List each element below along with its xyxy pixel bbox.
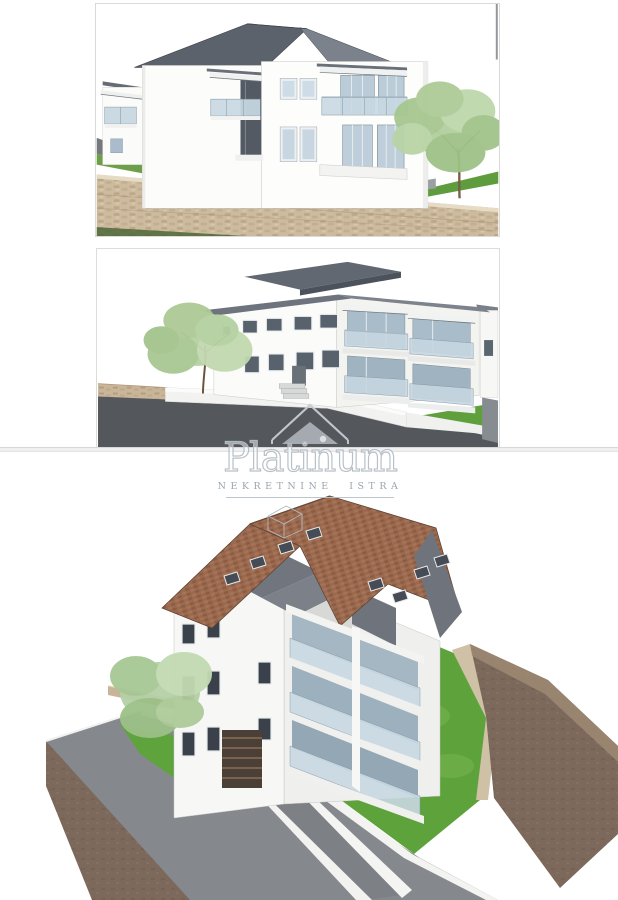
photo-side-elevation [95,3,500,237]
photo-aerial-view [0,486,618,900]
watermark-brand: Platinum [205,438,415,478]
side-elevation-render [96,4,499,236]
agency-watermark: Platinum NEKRETNINE ISTRA [205,392,415,498]
watermark-subtitle: NEKRETNINE ISTRA [205,481,415,493]
watermark-rule [226,497,394,498]
listing-image: Platinum NEKRETNINE ISTRA [0,0,618,900]
aerial-view-render [0,486,618,900]
